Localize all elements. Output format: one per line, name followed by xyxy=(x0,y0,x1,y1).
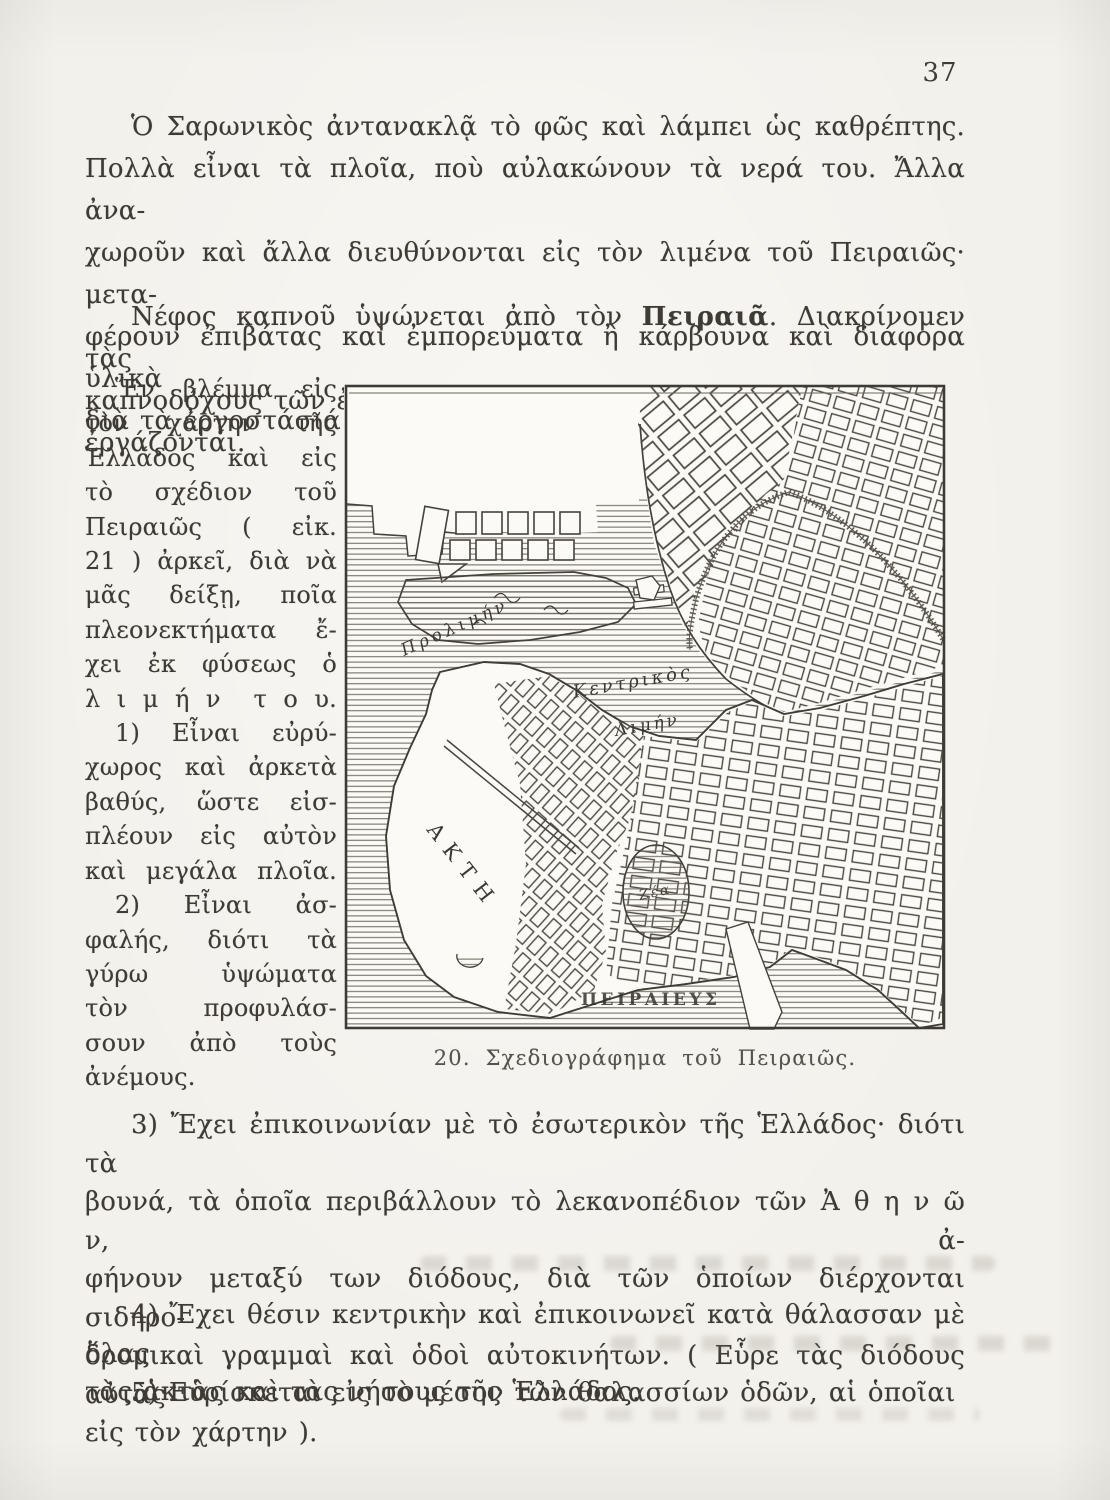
piraeus-map: Προλιμήν Κεντρικὸς Λιμήν ΑΚΤΗ Ζέα ΠΕΙΡΑΙ… xyxy=(344,384,946,1030)
text-line: 21 ) ἀρκεῖ, διὰ νὰ xyxy=(85,544,337,578)
text-line: τὸν χάρτην τῆς xyxy=(85,406,337,440)
text-line: χωρος καὶ ἀρκετὰ xyxy=(85,750,337,784)
text-line: βαθύς, ὥστε εἰσ- xyxy=(85,785,337,819)
page-number: 37 xyxy=(900,58,980,88)
sidenote-column: Ἕν βλέμμα εἰς τὸν χάρτην τῆς Ἑλλάδος καὶ… xyxy=(85,372,337,1095)
book-page: 37 Ὁ Σαρωνικὸς ἀντανακλᾷ τὸ φῶς καὶ λάμπ… xyxy=(0,0,1110,1500)
text-line: 3) Ἔχει ἐπικοινωνίαν μὲ τὸ ἐσωτερικὸν τῆ… xyxy=(85,1106,965,1183)
text-line: βουνά, τὰ ὁποῖα περιβάλλουν τὸ λεκανοπέδ… xyxy=(85,1183,965,1260)
text-line: τὸν προφυλάσ- xyxy=(85,991,337,1025)
print-bleed-artifact xyxy=(610,1336,1060,1351)
text-line: ἀνέμους. xyxy=(85,1060,337,1094)
text-line: μᾶς δείξῃ, ποῖα xyxy=(85,578,337,612)
print-bleed-artifact xyxy=(420,1256,995,1271)
text-line: σουν ἀπὸ τοὺς xyxy=(85,1026,337,1060)
text-line: Ὁ Σαρωνικὸς ἀντανακλᾷ τὸ φῶς καὶ λάμπει … xyxy=(85,106,965,148)
text-line: Ἑλλάδος καὶ εἰς xyxy=(85,441,337,475)
figure-caption: 20. Σχεδιογράφημα τοῦ Πειραιῶς. xyxy=(344,1046,946,1070)
text-span: Νέφος καπνοῦ ὑψώνεται ἀπὸ τὸν xyxy=(131,302,642,332)
text-line: 5) Εὑρίσκεται εἰς τὸ μέσον τῶν θαλασσίων… xyxy=(85,1374,965,1413)
text-line: χει ἐκ φύσεως ὁ xyxy=(85,647,337,681)
map-label-piraeus-city: ΠΕΙΡΑΙΕΥΣ xyxy=(581,990,721,1010)
text-line: 4) Ἔχει θέσιν κεντρικὴν καὶ ἐπικοινωνεῖ … xyxy=(85,1296,965,1373)
piraeus-map-figure: Προλιμήν Κεντρικὸς Λιμήν ΑΚΤΗ Ζέα ΠΕΙΡΑΙ… xyxy=(344,384,946,1030)
text-line: Ἕν βλέμμα εἰς xyxy=(85,372,337,406)
bold-word-piraeus: Πειραιᾶ xyxy=(642,302,769,332)
text-line: λ ι μ ή ν τ ο υ. xyxy=(85,682,337,716)
text-line: Πειραιῶς ( εἰκ. xyxy=(85,510,337,544)
text-line: 2) Εἶναι ἀσ- xyxy=(85,888,337,922)
text-line: Πολλὰ εἶναι τὰ πλοῖα, ποὺ αὐλακώνουν τὰ … xyxy=(85,148,965,232)
text-line: Νέφος καπνοῦ ὑψώνεται ἀπὸ τὸν Πειραιᾶ. Δ… xyxy=(85,296,965,380)
text-line: πλέουν εἰς αὐτὸν xyxy=(85,819,337,853)
text-line: γύρω ὑψώματα xyxy=(85,957,337,991)
text-line: φαλής, διότι τὰ xyxy=(85,923,337,957)
text-line: πλεονεκτήματα ἔ- xyxy=(85,613,337,647)
text-line: τὸ σχέδιον τοῦ xyxy=(85,475,337,509)
paragraph-point5: 5) Εὑρίσκεται εἰς τὸ μέσον τῶν θαλασσίων… xyxy=(85,1374,965,1413)
text-line: καὶ μεγάλα πλοῖα. xyxy=(85,854,337,888)
text-line: 1) Εἶναι εὐρύ- xyxy=(85,716,337,750)
print-bleed-artifact xyxy=(560,1408,980,1421)
